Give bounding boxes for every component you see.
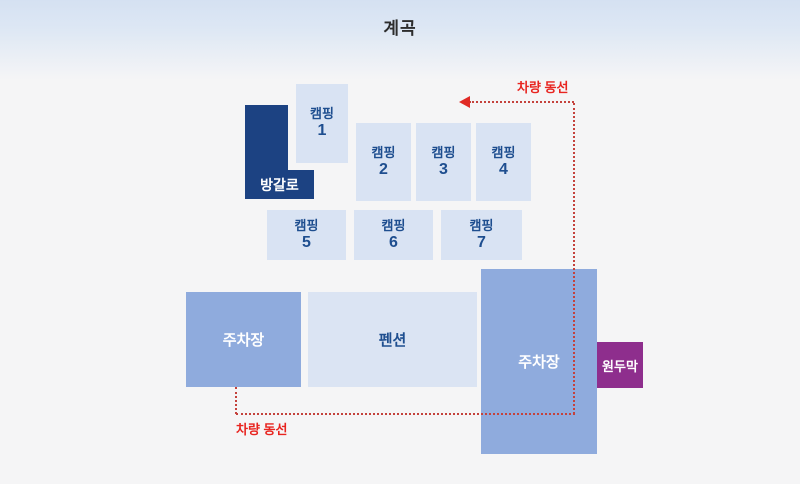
zone-parking-left-label: 주차장 xyxy=(223,329,264,350)
zone-camp-5-number: 5 xyxy=(302,234,311,252)
zone-pension: 펜션 xyxy=(308,292,477,387)
top-gradient-band xyxy=(0,0,800,80)
zone-camp-4: 캠핑 4 xyxy=(476,123,531,201)
zone-camp-2: 캠핑 2 xyxy=(356,123,411,201)
zone-camp-1-number: 1 xyxy=(318,122,327,140)
zone-camp-6: 캠핑 6 xyxy=(354,210,433,260)
map-title: 계곡 xyxy=(0,14,800,39)
zone-camp-4-label: 캠핑 xyxy=(492,146,516,161)
zone-bungalow-foot: 방갈로 xyxy=(245,170,314,199)
zone-parking-right-label: 주차장 xyxy=(518,351,559,372)
zone-hut: 원두막 xyxy=(597,342,643,388)
zone-camp-3: 캠핑 3 xyxy=(416,123,471,201)
route-line-bottom xyxy=(236,413,575,415)
site-map: 계곡 방갈로 캠핑 1 캠핑 2 캠핑 3 캠핑 4 캠핑 5 캠핑 6 캠핑 … xyxy=(0,0,800,484)
zone-camp-1-label: 캠핑 xyxy=(310,107,334,122)
zone-parking-right: 주차장 xyxy=(481,269,597,454)
route-line-right xyxy=(573,103,575,414)
zone-camp-7: 캠핑 7 xyxy=(441,210,522,260)
zone-camp-3-label: 캠핑 xyxy=(432,146,456,161)
route-line-parking-exit xyxy=(235,387,237,414)
route-line-top xyxy=(469,101,574,103)
zone-camp-6-number: 6 xyxy=(389,234,398,252)
zone-camp-5: 캠핑 5 xyxy=(267,210,346,260)
zone-camp-1: 캠핑 1 xyxy=(296,84,348,163)
zone-camp-2-number: 2 xyxy=(379,161,388,179)
zone-camp-5-label: 캠핑 xyxy=(295,219,319,234)
zone-camp-4-number: 4 xyxy=(499,161,508,179)
route-label-bottom: 차량 동선 xyxy=(236,419,287,438)
zone-camp-7-label: 캠핑 xyxy=(470,219,494,234)
route-arrow-icon xyxy=(459,96,470,108)
zone-camp-2-label: 캠핑 xyxy=(372,146,396,161)
zone-bungalow-label: 방갈로 xyxy=(260,175,299,195)
zone-pension-label: 펜션 xyxy=(379,329,407,350)
zone-camp-7-number: 7 xyxy=(477,234,486,252)
route-label-top: 차량 동선 xyxy=(517,77,568,96)
zone-camp-6-label: 캠핑 xyxy=(382,219,406,234)
zone-camp-3-number: 3 xyxy=(439,161,448,179)
zone-parking-left: 주차장 xyxy=(186,292,301,387)
zone-hut-label: 원두막 xyxy=(602,356,638,375)
